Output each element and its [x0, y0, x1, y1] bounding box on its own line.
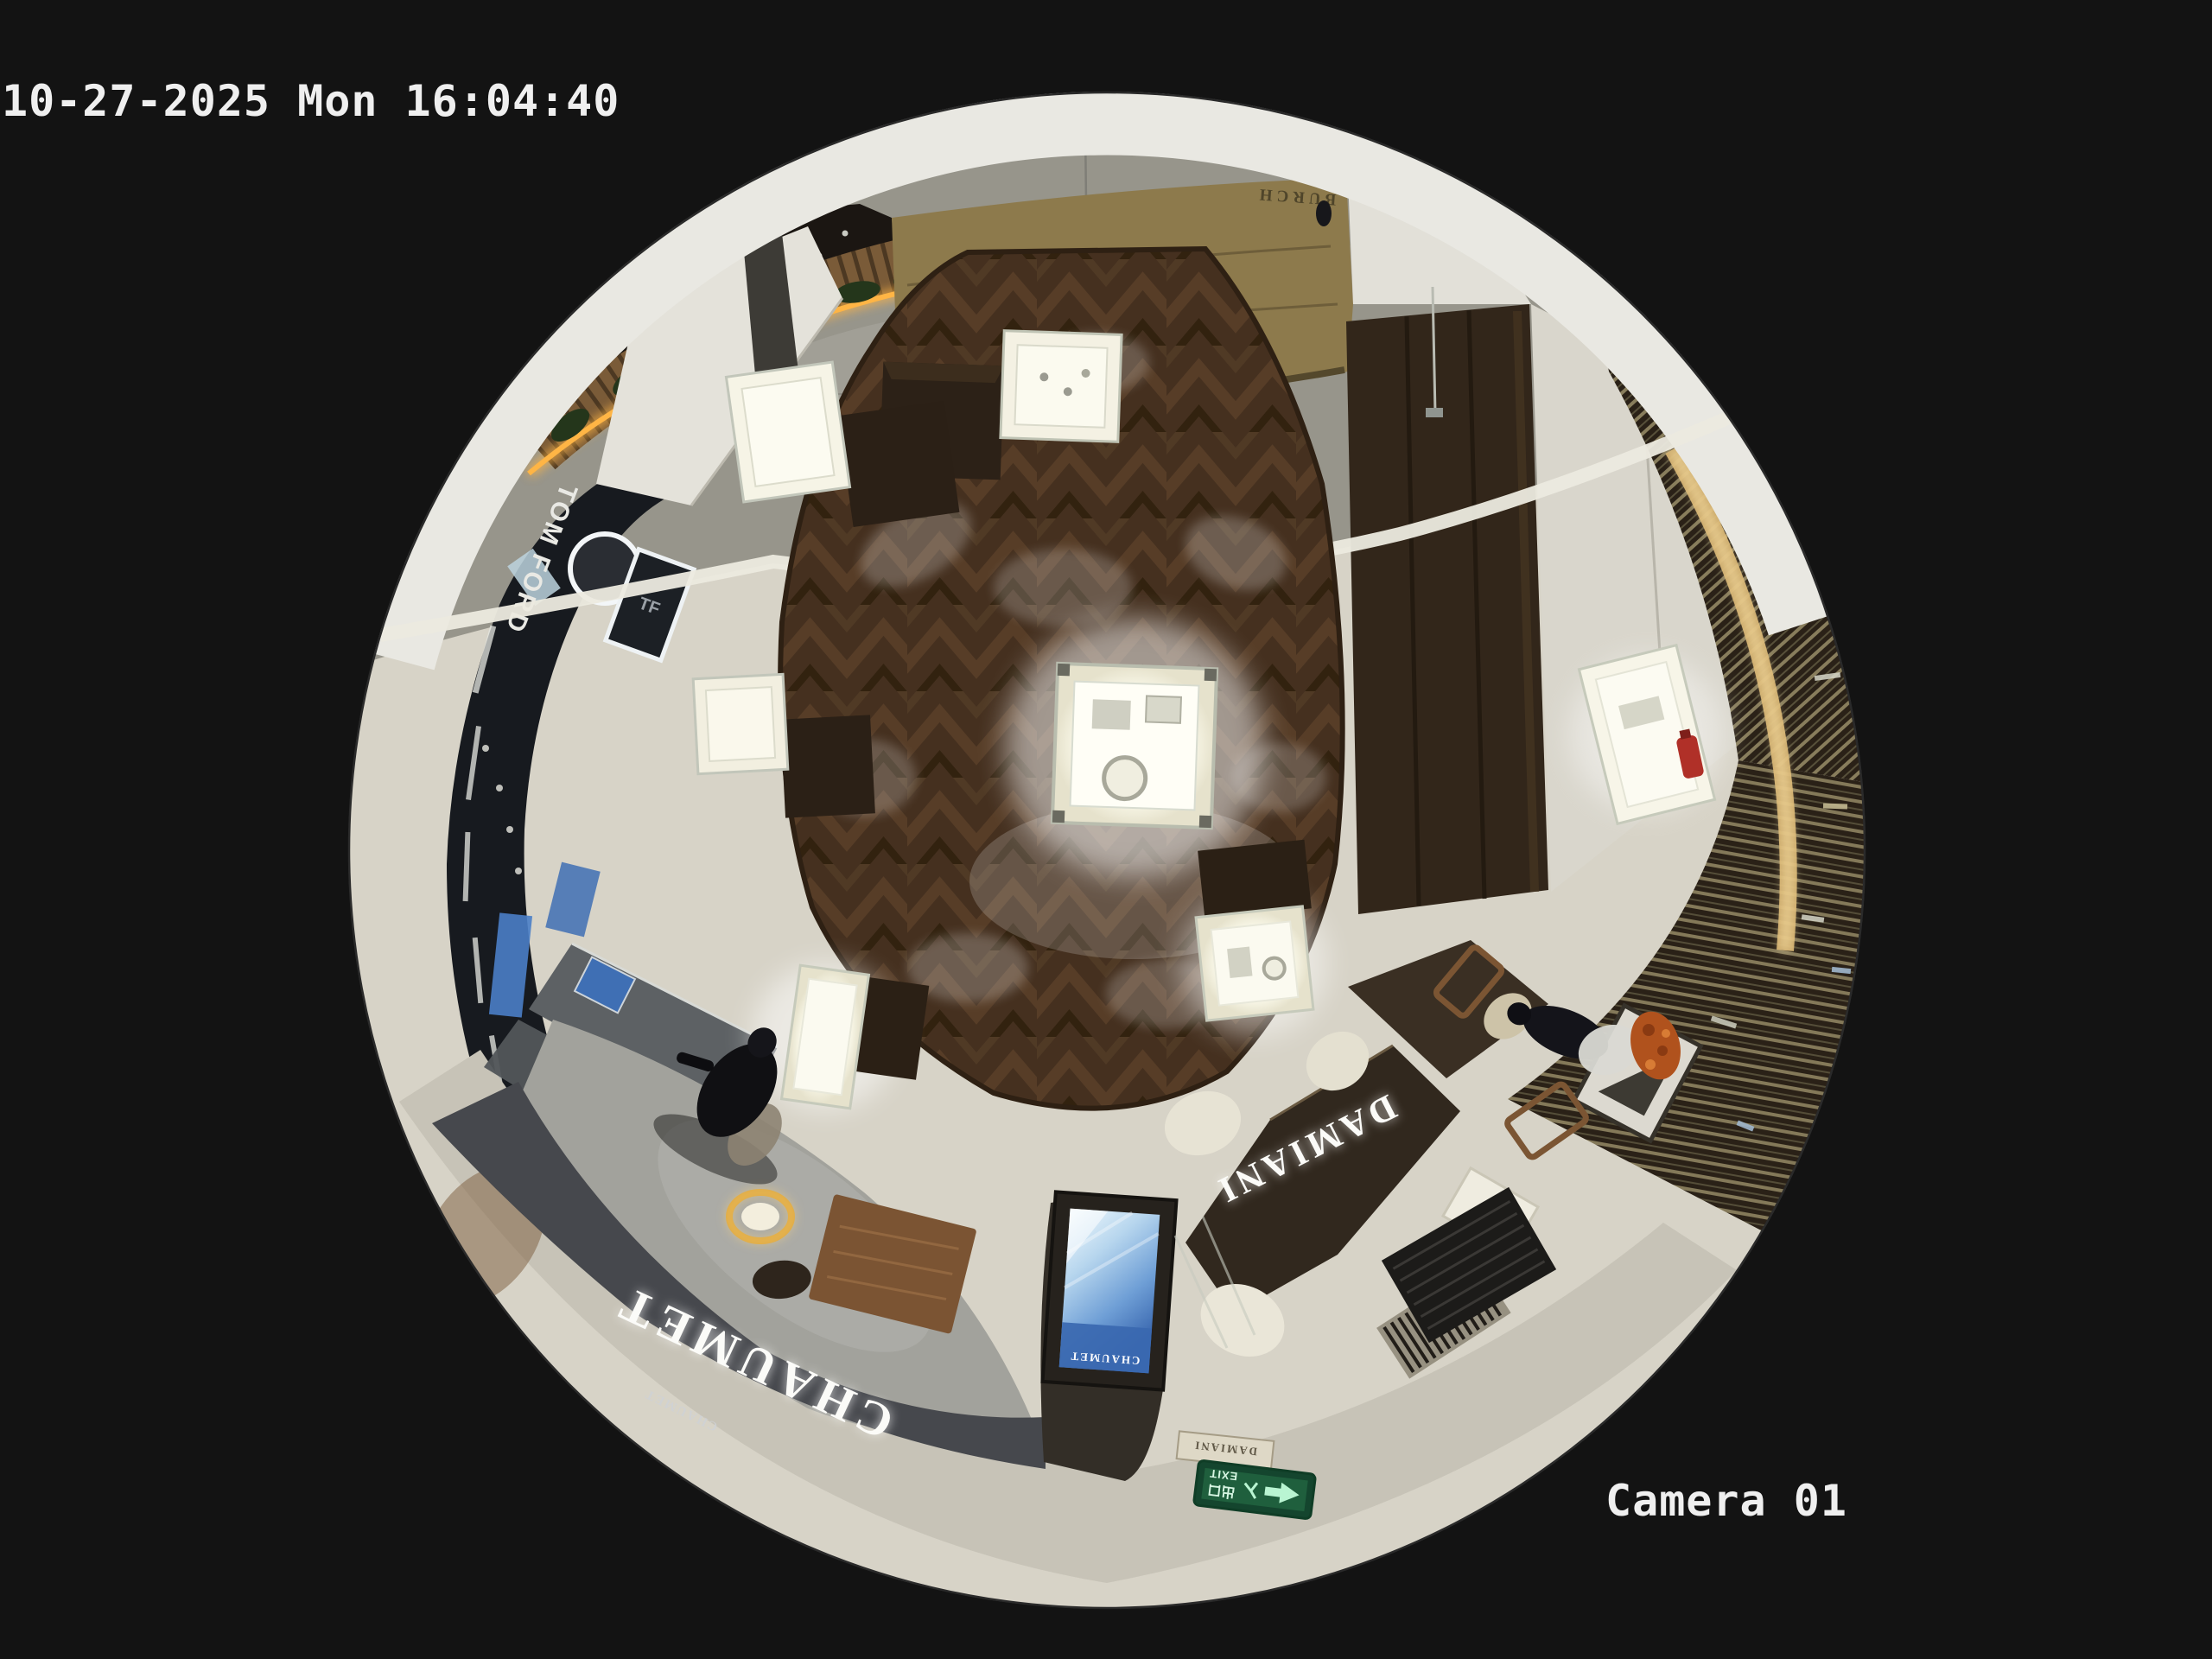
central-vitrine — [1052, 664, 1217, 828]
fisheye-view: TOM FORD TF — [0, 0, 2212, 1659]
corridor-person — [1316, 200, 1332, 226]
cctv-frame: TOM FORD TF — [0, 0, 2212, 1659]
osd-camera-label: Camera 01 — [1605, 1479, 1847, 1522]
dark-wood-panel — [1346, 304, 1548, 914]
osd-timestamp: 10-27-2025 Mon 16:04:40 — [2, 79, 620, 123]
